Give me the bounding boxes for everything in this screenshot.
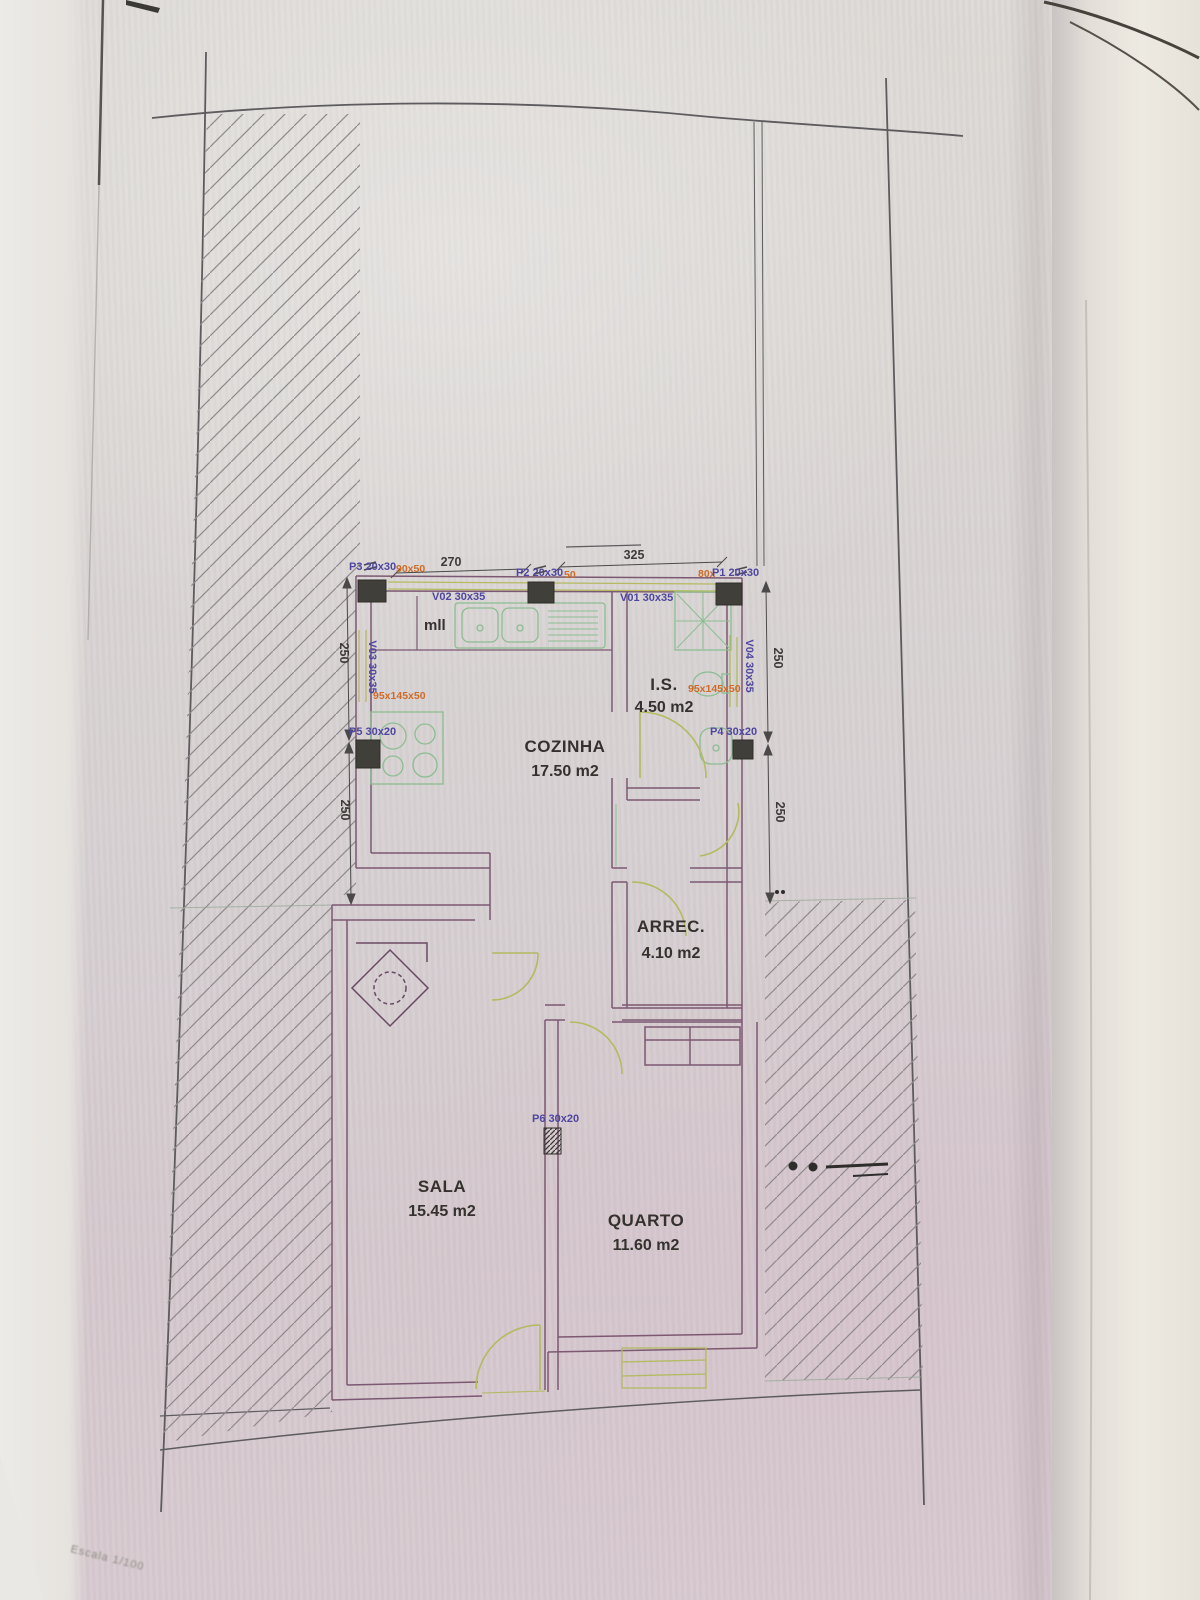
label-v02: V02 30x35 — [432, 591, 485, 603]
arrow-right-mid-a — [764, 732, 772, 742]
left-page-margin — [0, 0, 86, 1600]
wall-sala-south-inner — [347, 1382, 478, 1385]
hatch-area-right — [765, 900, 923, 1380]
door-arc-hall — [492, 953, 538, 1000]
fireplace-flue — [374, 972, 406, 1004]
fireplace-diamond — [352, 950, 428, 1026]
arrow-right-bottom — [766, 893, 774, 903]
party-wall-line-b — [762, 122, 764, 566]
pillar-p3 — [358, 580, 386, 602]
room-label-is: I.S. — [650, 675, 678, 694]
dim-line-right-upper — [766, 588, 768, 737]
window-quarto-lines — [622, 1360, 706, 1376]
label-v03: V03 30x35 — [366, 640, 378, 693]
stove-outline — [371, 712, 443, 784]
arrow-right-mid-b — [764, 745, 772, 755]
top-left-page-corner-mark — [126, 0, 160, 13]
wardrobe-lines — [645, 1027, 740, 1065]
wall-sala-south-outer — [332, 1396, 482, 1400]
washbasin-drain — [713, 745, 719, 751]
room-area-sala: 15.45 m2 — [408, 1203, 476, 1220]
room-area-arrec: 4.10 m2 — [642, 945, 701, 962]
label-p4: P4 30x20 — [710, 726, 757, 738]
left-page-edge-line — [99, 0, 103, 185]
stove-burner-2 — [415, 724, 435, 744]
wardrobe-outline — [645, 1027, 740, 1065]
annotation-dot-2 — [809, 1163, 817, 1171]
label-p3: P3 20x30 — [349, 561, 396, 573]
small-dot-1 — [776, 891, 779, 894]
window-quarto — [622, 1348, 706, 1388]
dim-250-left-upper: 250 — [337, 643, 351, 664]
window-v03 — [359, 630, 366, 702]
floor-plan-drawing: COZINHA 17.50 m2 I.S. 4.50 m2 ARREC. 4.1… — [0, 0, 1200, 1600]
door-arc-quarto — [570, 1022, 622, 1074]
label-p1: P1 20x30 — [712, 567, 759, 579]
door-arc-is — [640, 712, 706, 778]
hatch-area-left — [163, 114, 360, 1443]
entrance-threshold — [482, 1391, 545, 1393]
dim-line-right-lower — [768, 749, 770, 897]
label-bath-right: 95x145x50 — [688, 683, 741, 695]
door-arc-is-south — [700, 803, 739, 856]
right-page-curl — [1052, 0, 1200, 1600]
label-p6: P6 30x20 — [532, 1113, 579, 1125]
room-label-quarto: QUARTO — [608, 1211, 684, 1230]
pillar-p5 — [356, 740, 380, 768]
short-reference-line — [566, 545, 641, 547]
pillar-p2 — [528, 582, 554, 603]
party-wall-line-a — [754, 122, 757, 566]
label-bath-left: 95x145x50 — [373, 690, 426, 702]
pillar-p4 — [733, 740, 753, 759]
pillars — [356, 580, 753, 1154]
room-label-arrec: ARREC. — [637, 917, 705, 936]
label-p3-size: 90x50 — [396, 563, 425, 575]
dim-line-325 — [560, 562, 722, 567]
room-area-is: 4.50 m2 — [635, 699, 694, 716]
sink-drain-right — [517, 625, 523, 631]
small-dot-2 — [782, 891, 785, 894]
annotation-dot-1 — [789, 1162, 797, 1170]
label-p2-size: 50 — [564, 569, 576, 581]
page-curl-shadow — [1008, 0, 1056, 1600]
stove-burner-3 — [383, 756, 403, 776]
room-label-sala: SALA — [418, 1177, 466, 1196]
label-v01: V01 30x35 — [620, 592, 673, 604]
pillar-p1 — [716, 583, 742, 605]
dim-250-left-lower: 250 — [338, 800, 352, 821]
pillar-p6 — [544, 1128, 561, 1154]
dim-270: 270 — [441, 555, 462, 569]
fireplace — [352, 943, 428, 1026]
photographed-floor-plan-page: COZINHA 17.50 m2 I.S. 4.50 m2 ARREC. 4.1… — [0, 0, 1200, 1600]
arrow-right-top — [762, 582, 770, 592]
left-page-edge-faint — [88, 185, 99, 640]
label-p2: P2 20x30 — [516, 567, 563, 579]
room-area-cozinha: 17.50 m2 — [531, 763, 599, 780]
label-v04: V04 30x35 — [743, 639, 755, 692]
sink-drainer — [548, 611, 598, 641]
room-label-cozinha: COZINHA — [525, 737, 606, 756]
label-p5: P5 30x20 — [349, 726, 396, 738]
sink-drain-left — [477, 625, 483, 631]
dim-250-right-upper: 250 — [771, 648, 785, 669]
arrow-left-bottom — [347, 894, 355, 904]
room-area-quarto: 11.60 m2 — [613, 1237, 680, 1254]
door-arc-entrance — [476, 1325, 540, 1389]
label-dishwasher: mll — [424, 617, 446, 634]
dim-325: 325 — [624, 548, 645, 562]
wall-quarto-south-inner — [558, 1334, 742, 1337]
stove-burner-4 — [413, 753, 437, 777]
dim-250-right-lower: 250 — [773, 802, 787, 823]
